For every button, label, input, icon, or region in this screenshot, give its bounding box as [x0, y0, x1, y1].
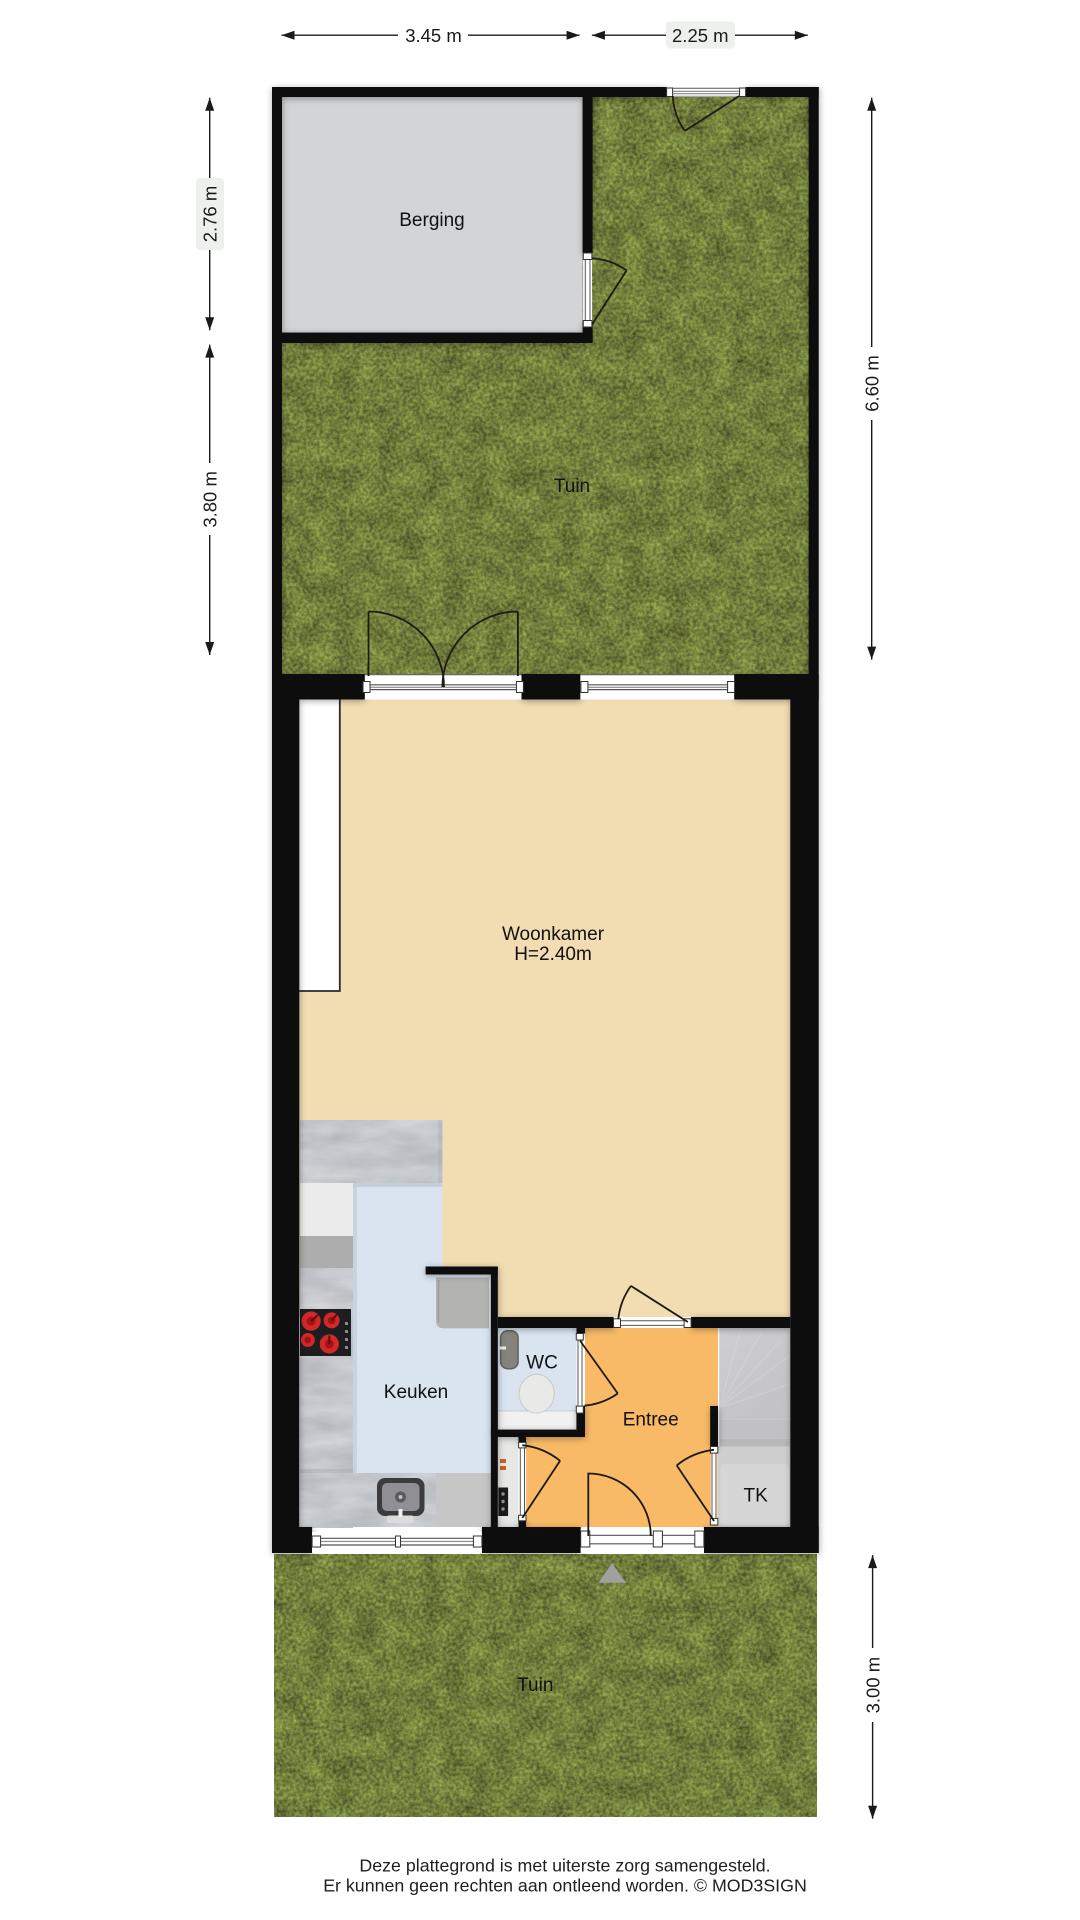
svg-text:Entree: Entree [623, 1410, 679, 1431]
svg-text:WC: WC [526, 1353, 558, 1374]
svg-text:Keuken: Keuken [384, 1382, 448, 1403]
svg-text:2.76 m: 2.76 m [200, 186, 221, 243]
svg-text:TK: TK [744, 1486, 769, 1507]
svg-text:3.45 m: 3.45 m [405, 25, 462, 46]
svg-text:3.00 m: 3.00 m [863, 1657, 884, 1714]
svg-text:Er kunnen geen rechten aan ont: Er kunnen geen rechten aan ontleend word… [323, 1876, 807, 1896]
svg-text:2.25 m: 2.25 m [672, 25, 729, 46]
svg-text:H=2.40m: H=2.40m [514, 944, 592, 965]
svg-text:3.80 m: 3.80 m [200, 471, 221, 528]
svg-text:Tuin: Tuin [554, 476, 590, 497]
svg-text:Woonkamer: Woonkamer [502, 924, 605, 945]
svg-text:Tuin: Tuin [517, 1675, 553, 1696]
svg-text:6.60 m: 6.60 m [862, 355, 883, 412]
svg-text:Berging: Berging [399, 210, 465, 231]
svg-text:Deze plattegrond is met uiters: Deze plattegrond is met uiterste zorg sa… [359, 1856, 770, 1876]
